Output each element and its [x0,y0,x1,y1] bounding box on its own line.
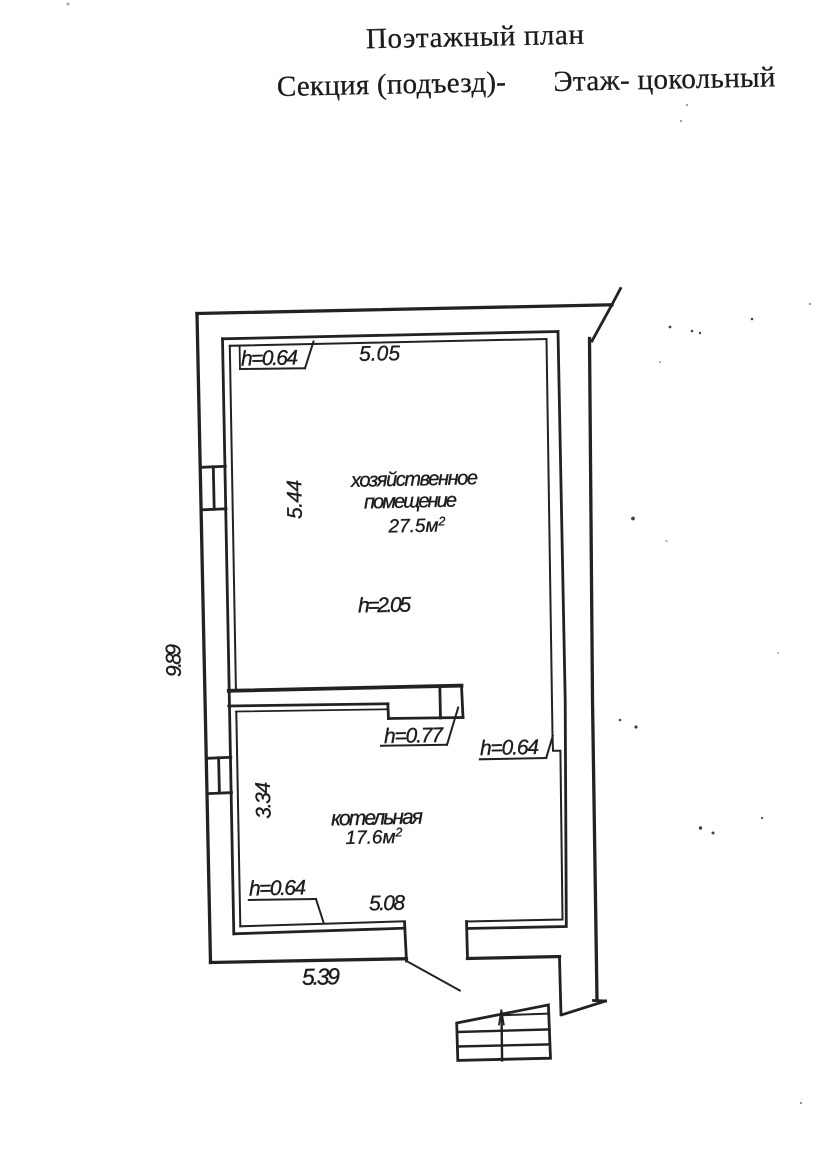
svg-text:5.08: 5.08 [369,892,406,916]
svg-text:17.6м2: 17.6м2 [345,825,402,849]
svg-text:h=2.05: h=2.05 [358,593,412,617]
svg-text:хозяйственное: хозяйственное [350,467,478,492]
svg-text:помещение: помещение [364,490,457,514]
svg-text:5.05: 5.05 [359,342,401,366]
svg-text:3.34: 3.34 [252,782,276,819]
svg-text:5.44: 5.44 [283,480,307,519]
svg-text:Секция (подъезд)-: Секция (подъезд)- [277,66,507,103]
svg-text:5.39: 5.39 [302,963,341,990]
svg-text:9.89: 9.89 [162,643,186,677]
svg-text:27.5м2: 27.5м2 [387,514,445,537]
svg-text:h=0.64: h=0.64 [249,876,306,900]
svg-text:Поэтажный план: Поэтажный план [366,19,585,56]
svg-text:h=0.64: h=0.64 [241,346,298,370]
svg-text:h=0.64: h=0.64 [480,736,539,760]
svg-text:Этаж- цокольный: Этаж- цокольный [553,61,776,98]
svg-text:h=0.77: h=0.77 [384,724,445,748]
